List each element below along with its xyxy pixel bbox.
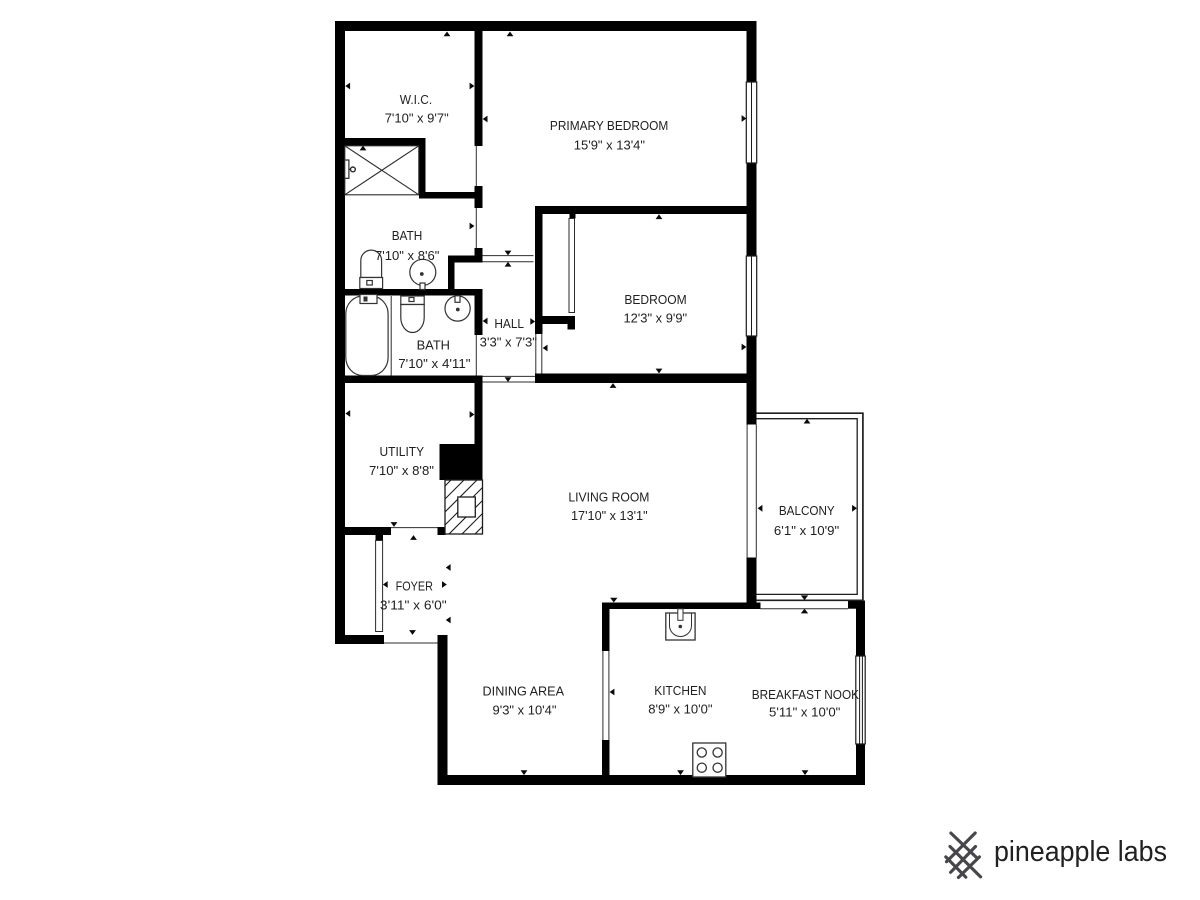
svg-text:5'11" x 10'0": 5'11" x 10'0": [769, 704, 841, 719]
svg-text:9'3" x 10'4": 9'3" x 10'4": [493, 703, 557, 718]
svg-text:DINING AREA: DINING AREA: [483, 684, 565, 699]
svg-text:BATH: BATH: [392, 228, 423, 243]
svg-text:12'3" x 9'9": 12'3" x 9'9": [623, 311, 687, 326]
svg-text:17'10" x 13'1": 17'10" x 13'1": [571, 508, 648, 523]
svg-text:3'3" x 7'3": 3'3" x 7'3": [480, 334, 538, 349]
svg-text:pineapple labs: pineapple labs: [994, 836, 1167, 868]
svg-text:8'9" x 10'0": 8'9" x 10'0": [648, 702, 713, 717]
svg-text:HALL: HALL: [494, 316, 524, 331]
svg-text:15'9" x 13'4": 15'9" x 13'4": [574, 137, 646, 152]
svg-text:UTILITY: UTILITY: [380, 444, 425, 459]
svg-text:7'10" x 9'7": 7'10" x 9'7": [385, 111, 449, 126]
svg-text:BATH: BATH: [417, 338, 450, 353]
svg-text:BALCONY: BALCONY: [779, 503, 835, 518]
svg-text:BEDROOM: BEDROOM: [624, 292, 686, 307]
svg-text:7'10" x 4'11": 7'10" x 4'11": [398, 356, 471, 371]
svg-text:7'10" x 8'8": 7'10" x 8'8": [369, 463, 434, 478]
svg-text:W.I.C.: W.I.C.: [400, 92, 433, 107]
svg-text:PRIMARY BEDROOM: PRIMARY BEDROOM: [550, 118, 668, 133]
svg-text:BREAKFAST NOOK: BREAKFAST NOOK: [752, 687, 859, 702]
svg-text:3'11" x 6'0": 3'11" x 6'0": [380, 598, 447, 613]
svg-text:LIVING ROOM: LIVING ROOM: [568, 490, 649, 505]
svg-text:6'1" x 10'9": 6'1" x 10'9": [774, 523, 840, 538]
svg-text:FOYER: FOYER: [396, 578, 433, 593]
svg-text:KITCHEN: KITCHEN: [654, 683, 706, 698]
svg-text:7'10" x 8'6": 7'10" x 8'6": [375, 248, 440, 263]
